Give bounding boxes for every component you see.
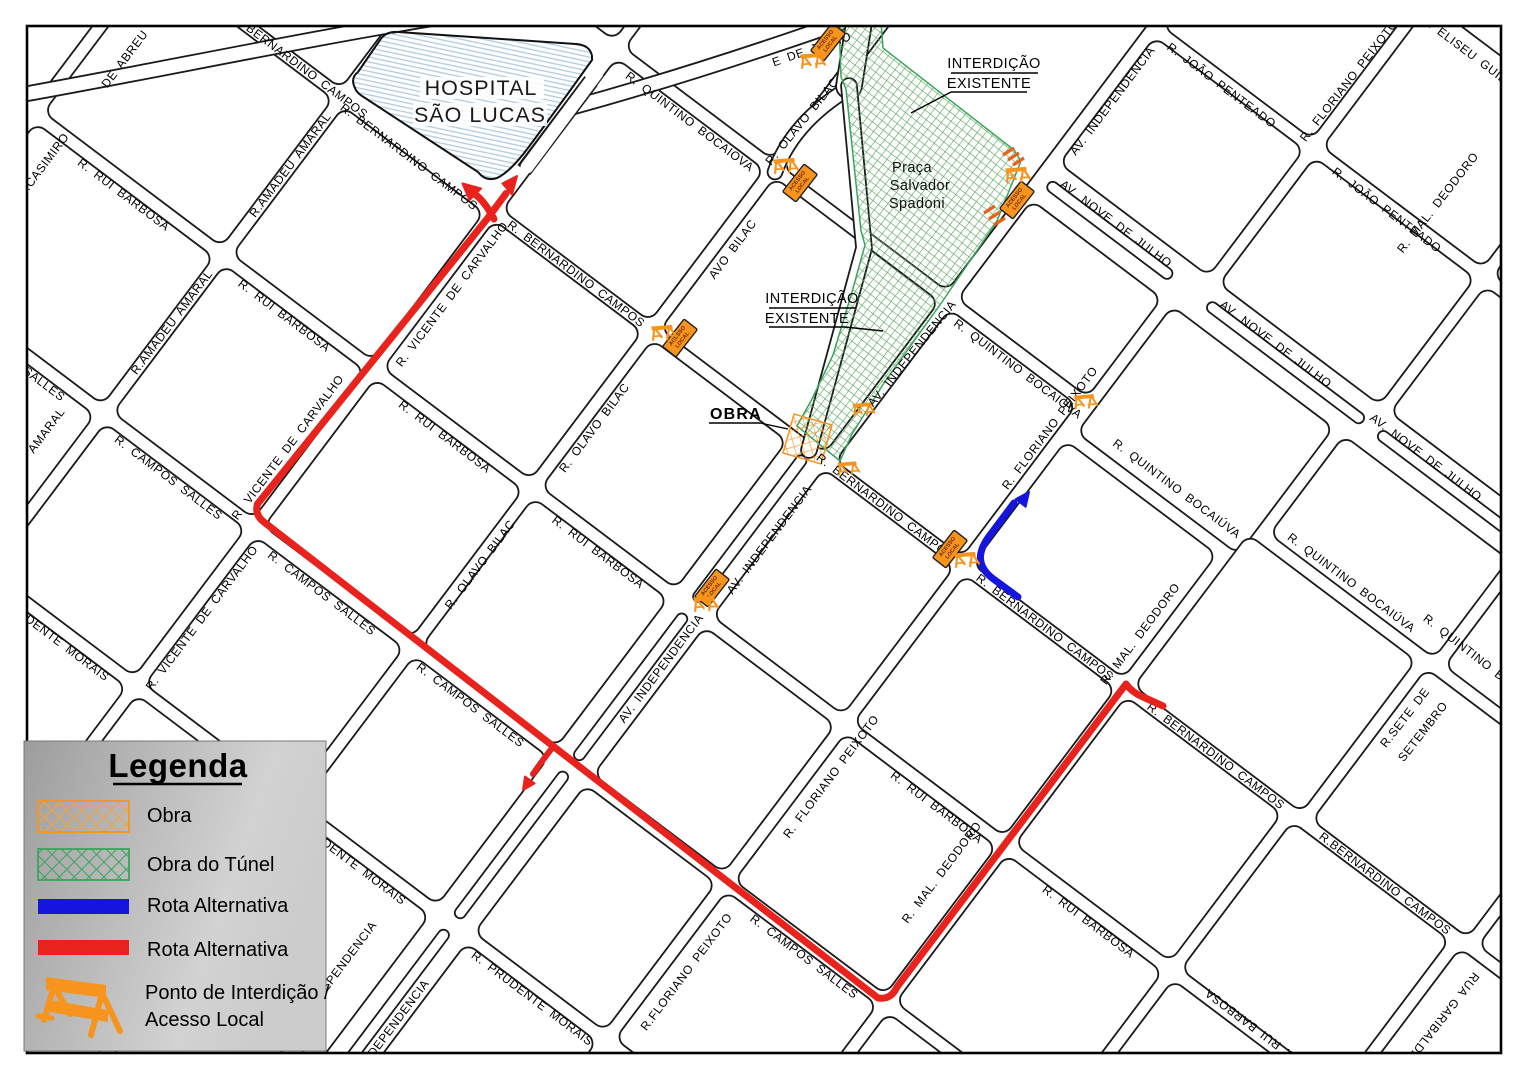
svg-text:Salvador: Salvador — [890, 178, 950, 194]
svg-text:Praça: Praça — [892, 160, 932, 176]
svg-text:EXISTENTE: EXISTENTE — [765, 311, 849, 327]
svg-text:INTERDIÇÃO: INTERDIÇÃO — [765, 290, 858, 307]
svg-text:Spadoni: Spadoni — [889, 196, 945, 212]
svg-text:EXISTENTE: EXISTENTE — [947, 76, 1031, 92]
svg-text:Legenda: Legenda — [108, 747, 247, 784]
svg-text:OBRA: OBRA — [710, 406, 762, 423]
svg-text:Rota Alternativa: Rota Alternativa — [147, 895, 289, 917]
svg-text:HOSPITAL: HOSPITAL — [425, 76, 538, 100]
svg-text:Obra: Obra — [147, 805, 192, 827]
svg-text:Rota Alternativa: Rota Alternativa — [147, 939, 289, 961]
svg-text:INTERDIÇÃO: INTERDIÇÃO — [947, 55, 1040, 72]
svg-text:Acesso Local: Acesso Local — [145, 1009, 264, 1031]
svg-text:Obra do Túnel: Obra do Túnel — [147, 854, 275, 876]
svg-text:SÃO LUCAS: SÃO LUCAS — [414, 102, 546, 127]
svg-text:Ponto de Interdição /: Ponto de Interdição / — [145, 982, 330, 1004]
